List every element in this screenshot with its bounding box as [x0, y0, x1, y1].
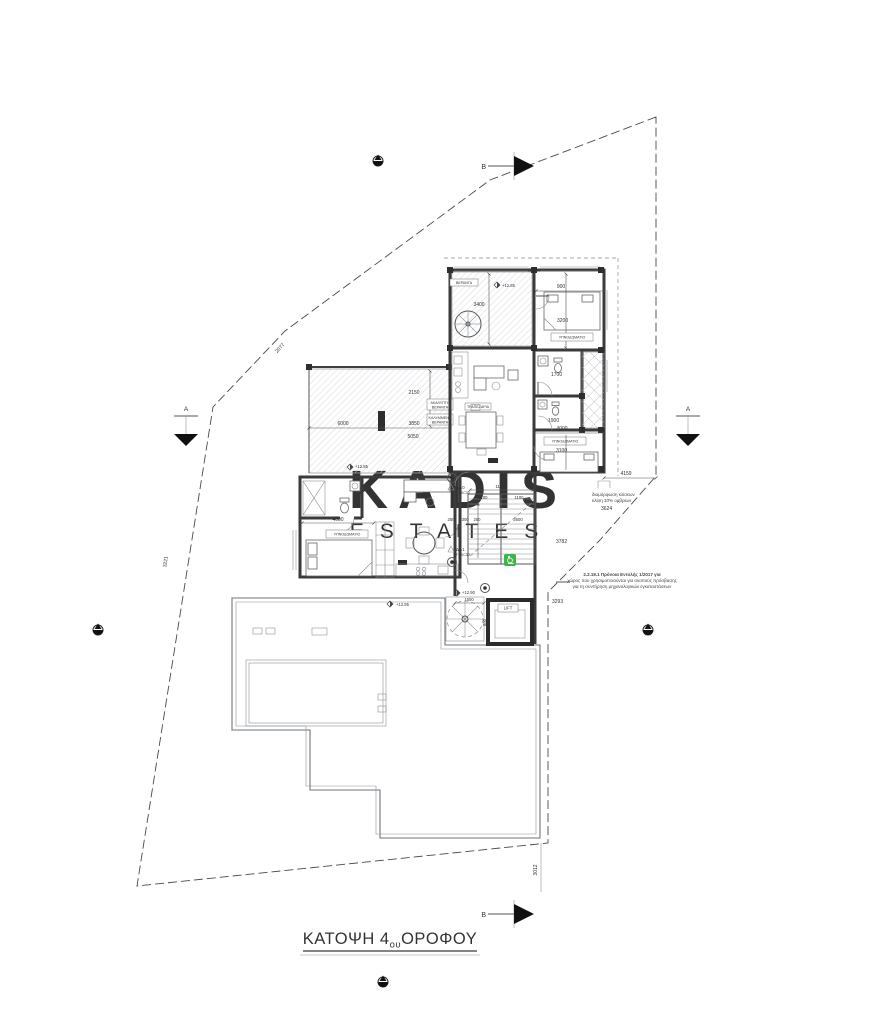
dim-3012: 3012 [533, 864, 539, 875]
sink-icon [538, 400, 547, 409]
section-marker-b-bottom: B [481, 900, 534, 928]
bathroom-upper: 1700 [538, 356, 562, 396]
survey-markers [93, 155, 653, 988]
title-block: ΚΑΤΟΨΗ 4ουΟΡΟΦΟΥ [300, 930, 480, 955]
roof-vent [312, 628, 327, 635]
section-label-a: A [184, 406, 189, 413]
sink-icon [350, 481, 360, 491]
dim-2077: 2077 [274, 342, 286, 354]
provision-note: 2.2.19.1 Πρόνοια Εντολής 1/2017 για χώρο… [556, 572, 678, 589]
coffee-table [492, 382, 500, 390]
spiral-staircase-icon [455, 311, 481, 337]
notes: διαμόρφωση κλίσεων κλίση 10% ομβρίων 2.2… [556, 481, 678, 589]
section-marker-a-left: A [174, 406, 198, 446]
svg-text:ΒΕΡΑΝΤΑ: ΒΕΡΑΝΤΑ [456, 281, 473, 285]
dim-3293: 3293 [552, 599, 563, 605]
toilet-icon [554, 358, 562, 362]
upper-unit: ΒΕΡΑΝΤΑ +12.85 3400 900 3200 ΥΠΝΟΔΩΜΑΤΙΟ… [447, 267, 607, 472]
bedroom-bottom-right: 4000 ΥΠΝΟΔΩΜΑΤΙΟ 3100 [534, 426, 604, 472]
bedroom-label: ΥΠΝΟΔΩΜΑΤΙΟ [552, 440, 579, 444]
armchair [508, 370, 518, 380]
section-marker-b-top: B [481, 152, 534, 180]
sink-icon [438, 566, 448, 574]
sink-icon [538, 356, 548, 366]
dim-3850: 3850 [408, 421, 419, 427]
living-kitchen-upper: ΤΡΑΠΕΖΑΡΙΑ [452, 352, 518, 463]
toilet-icon [552, 402, 559, 406]
slope-note: διαμόρφωση κλίσεων κλίση 10% ομβρίων [592, 481, 636, 503]
bedroom-label: ΥΠΝΟΔΩΜΑΤΙΟ [559, 336, 586, 340]
svg-text:ΒΕΡΑΝΤΑ: ΒΕΡΑΝΤΑ [432, 406, 449, 410]
accessibility-badge [504, 554, 516, 566]
elevation-upper: +12.85 [502, 283, 516, 288]
page-title: ΚΑΤΟΨΗ 4ουΟΡΟΦΟΥ [303, 930, 478, 951]
lift-label: LIFT [504, 606, 513, 611]
elevation-veranda: +12.85 [355, 464, 369, 469]
dim-1900: 1900 [548, 418, 559, 424]
dim-800: 800 [482, 618, 487, 626]
section-label-a: A [686, 406, 691, 413]
dim-900: 900 [557, 284, 566, 290]
dim-6000: 6000 [337, 421, 348, 427]
roof-veranda-label: ΒΕΡΑΝΤΑ [450, 279, 478, 286]
dim-3624: 3624 [601, 506, 612, 512]
svg-text:Δ4.1: Δ4.1 [456, 547, 465, 552]
dim-1100: 1100 [495, 484, 505, 489]
lift-shaft: LIFT 800 [482, 600, 532, 644]
fire-door-label-bottom: Δ4.1 FRSC30 [448, 546, 470, 557]
survey-marker-icon [93, 624, 103, 636]
svg-text:ΒΕΡΑΝΤΑ: ΒΕΡΑΝΤΑ [432, 421, 449, 425]
survey-marker-icon [378, 976, 388, 988]
svg-text:FRSC30: FRSC30 [456, 553, 470, 557]
dim-3221: 3221 [162, 556, 170, 568]
survey-marker-icon [373, 155, 383, 167]
dining-label: ΤΡΑΠΕΖΑΡΙΑ [467, 405, 490, 409]
toilet-icon [340, 498, 349, 502]
section-label-b: B [481, 912, 486, 919]
roof-vent [253, 628, 262, 634]
floor-plan-sheet: KADIS ESTATES 2077 3221 4159 3624 3782 3… [0, 0, 874, 1024]
tv [488, 458, 498, 463]
elevation-terrace: +12.85 [396, 602, 410, 607]
dim-4000: 4000 [556, 426, 567, 432]
watermark-line2: ESTATES [350, 520, 555, 543]
svg-text:FRSC30: FRSC30 [456, 491, 470, 495]
kitchen-counter [396, 564, 458, 576]
svg-text:διαμόρφωση κλίσεων: διαμόρφωση κλίσεων [592, 491, 636, 497]
dim-1700: 1700 [551, 372, 562, 378]
dim-5050: 5050 [407, 434, 418, 440]
spiral-staircase-small-icon [446, 597, 484, 641]
svg-text:χώρος που χρησιμοποιούνται για: χώρος που χρησιμοποιούνται για σκοπούς π… [567, 577, 677, 583]
bedroom-label: ΥΠΝΟΔΩΜΑΤΙΟ [334, 533, 361, 537]
dim-1100: 1100 [514, 495, 524, 500]
dim-2150: 2150 [408, 390, 419, 396]
bedroom-top-right: 900 3200 ΥΠΝΟΔΩΜΑΤΙΟ [536, 274, 604, 348]
title-suffix: ΟΡΟΦΟΥ [401, 930, 477, 948]
dim-2600: 2600 [513, 517, 523, 522]
svg-text:κλίση 10% ομβρίων: κλίση 10% ομβρίων [592, 498, 632, 503]
title-subscript: ου [390, 940, 401, 951]
dim-3782: 3782 [556, 539, 567, 545]
sofa [474, 366, 504, 378]
floor-plan-drawing: KADIS ESTATES 2077 3221 4159 3624 3782 3… [0, 0, 874, 1024]
roof-vent [266, 628, 275, 634]
roof-vent [378, 694, 386, 700]
svg-text:Δ4.0: Δ4.0 [456, 485, 465, 490]
roof-vent [378, 706, 386, 712]
dim-250: 250 [474, 517, 482, 522]
svg-text:ΚΑΛΥΜΜΕΝΗ: ΚΑΛΥΜΜΕΝΗ [429, 416, 452, 420]
section-label-b: B [481, 164, 486, 171]
dim-3400: 3400 [473, 302, 484, 308]
elevation-lobby: +12.90 [462, 590, 476, 595]
svg-text:για τη συντήρηση μηχανολογικών: για τη συντήρηση μηχανολογικών εγκαταστά… [573, 583, 672, 589]
dim-4159: 4159 [620, 471, 631, 477]
dim-4000-left: 4000 [332, 517, 343, 523]
dim-250: 250 [448, 517, 456, 522]
dim-3200: 3200 [557, 318, 568, 324]
dining-table [466, 412, 496, 448]
survey-marker-icon [643, 624, 653, 636]
sofa [404, 480, 450, 492]
svg-text:ΑΚΑΛΥΠΤΗ: ΑΚΑΛΥΠΤΗ [430, 401, 450, 405]
dim-1300: 1300 [459, 517, 469, 522]
section-marker-a-right: A [676, 406, 700, 446]
dim-1100: 1100 [478, 495, 488, 500]
door-arc [538, 382, 552, 396]
west-veranda: 6000 3850 5050 2150 ΑΚΑΛΥΠΤΗ ΒΕΡΑΝΤΑ ΚΑΛ… [306, 364, 453, 473]
title-main: ΚΑΤΟΨΗ 4 [303, 930, 390, 948]
